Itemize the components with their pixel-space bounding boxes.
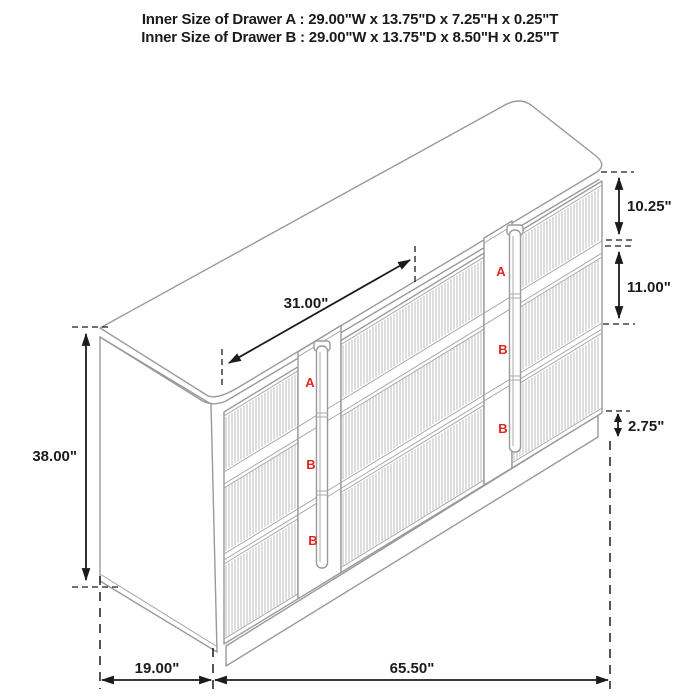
sideboard-diagram-svg: Inner Size of Drawer A : 29.00"W x 13.75… <box>0 0 700 700</box>
handle-bar <box>317 346 328 568</box>
product-dimension-diagram: Inner Size of Drawer A : 29.00"W x 13.75… <box>0 0 700 700</box>
title-line-1: Inner Size of Drawer A : 29.00"W x 13.75… <box>142 11 558 28</box>
dimension-drawer-b-label: 11.00" <box>627 279 671 296</box>
drawer-b-marker-right: B <box>498 342 507 357</box>
drawer-b-marker-left: B <box>306 457 315 472</box>
dimension-depth-label: 19.00" <box>135 660 180 677</box>
dimension-drawer-a-label: 10.25" <box>627 198 672 215</box>
drawer-b2-marker-left: B <box>308 533 317 548</box>
drawer-b2-marker-right: B <box>498 421 507 436</box>
sideboard-drawing: A B B A B B <box>100 101 602 666</box>
drawer-a-marker-left: A <box>305 375 315 390</box>
title-line-2: Inner Size of Drawer B : 29.00"W x 13.75… <box>141 29 559 46</box>
dimension-height-label: 38.00" <box>32 448 77 465</box>
dimension-base: 2.75" <box>606 411 664 436</box>
dimension-drawer-b: 11.00" <box>603 246 671 324</box>
dimension-drawer-a: 10.25" <box>601 172 672 240</box>
dimension-top-span-label: 31.00" <box>284 295 329 312</box>
dimension-base-label: 2.75" <box>628 418 664 435</box>
dimension-width-label: 65.50" <box>390 660 435 677</box>
drawer-handle-right <box>507 225 523 452</box>
handle-bar <box>510 230 521 452</box>
drawer-a-marker-right: A <box>496 264 506 279</box>
